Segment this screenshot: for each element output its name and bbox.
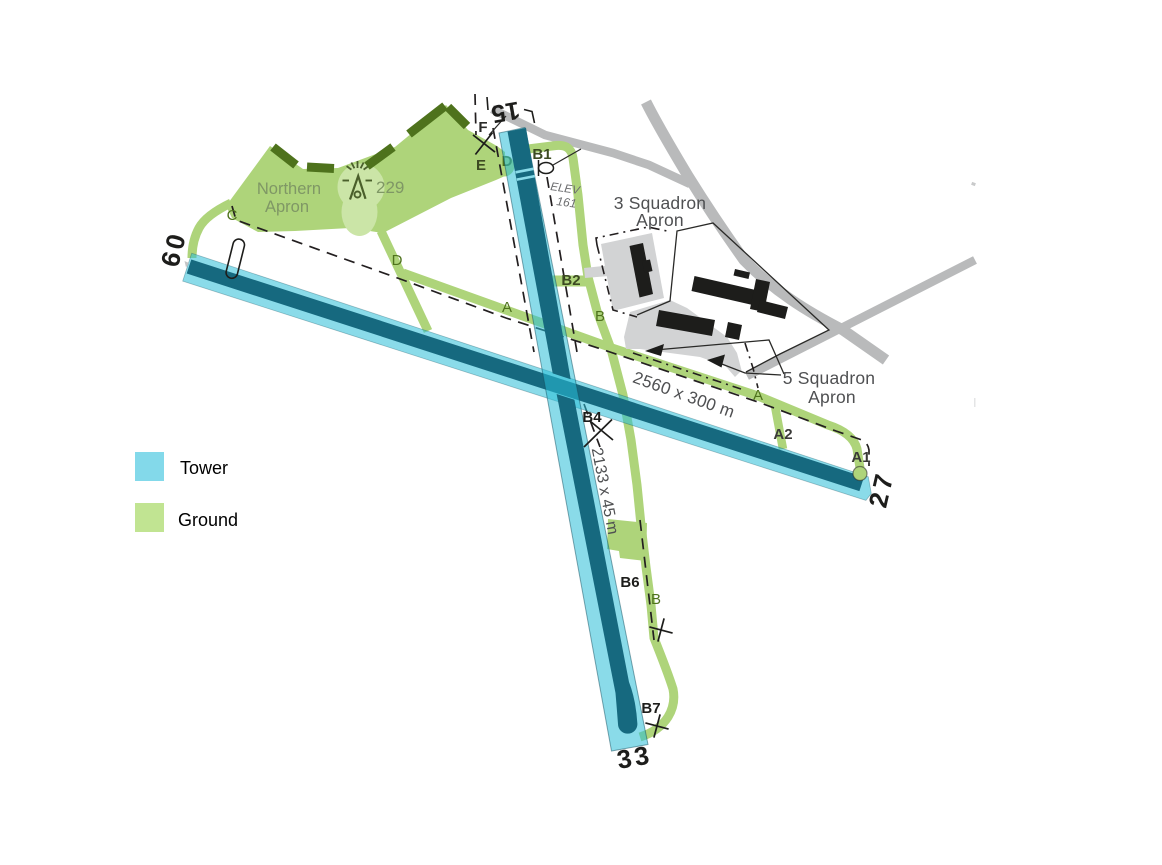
svg-text:B6: B6 [620, 574, 639, 591]
svg-text:33: 33 [615, 739, 655, 775]
svg-text:161: 161 [556, 194, 578, 211]
svg-text:A2: A2 [773, 426, 792, 443]
svg-text:B4: B4 [582, 409, 602, 426]
svg-text:Apron: Apron [265, 198, 309, 216]
svg-text:5 Squadron: 5 Squadron [783, 368, 876, 388]
svg-text:B2: B2 [561, 272, 580, 289]
svg-text:A: A [753, 387, 763, 404]
svg-text:B: B [651, 591, 661, 608]
svg-text:D: D [392, 252, 403, 269]
svg-text:C: C [227, 207, 238, 224]
svg-text:15: 15 [489, 96, 522, 129]
svg-text:Apron: Apron [636, 210, 684, 230]
svg-text:A: A [502, 299, 512, 316]
svg-text:A1: A1 [851, 449, 870, 466]
svg-text:Apron: Apron [808, 387, 856, 407]
svg-text:B1: B1 [532, 146, 551, 163]
svg-text:B: B [595, 308, 605, 325]
svg-text:Northern: Northern [257, 180, 321, 198]
svg-text:Ground: Ground [178, 510, 238, 530]
svg-text:B7: B7 [641, 700, 660, 717]
svg-text:Tower: Tower [180, 458, 228, 478]
svg-text:E: E [476, 157, 486, 174]
svg-text:F: F [478, 119, 487, 136]
svg-text:229: 229 [376, 178, 404, 197]
